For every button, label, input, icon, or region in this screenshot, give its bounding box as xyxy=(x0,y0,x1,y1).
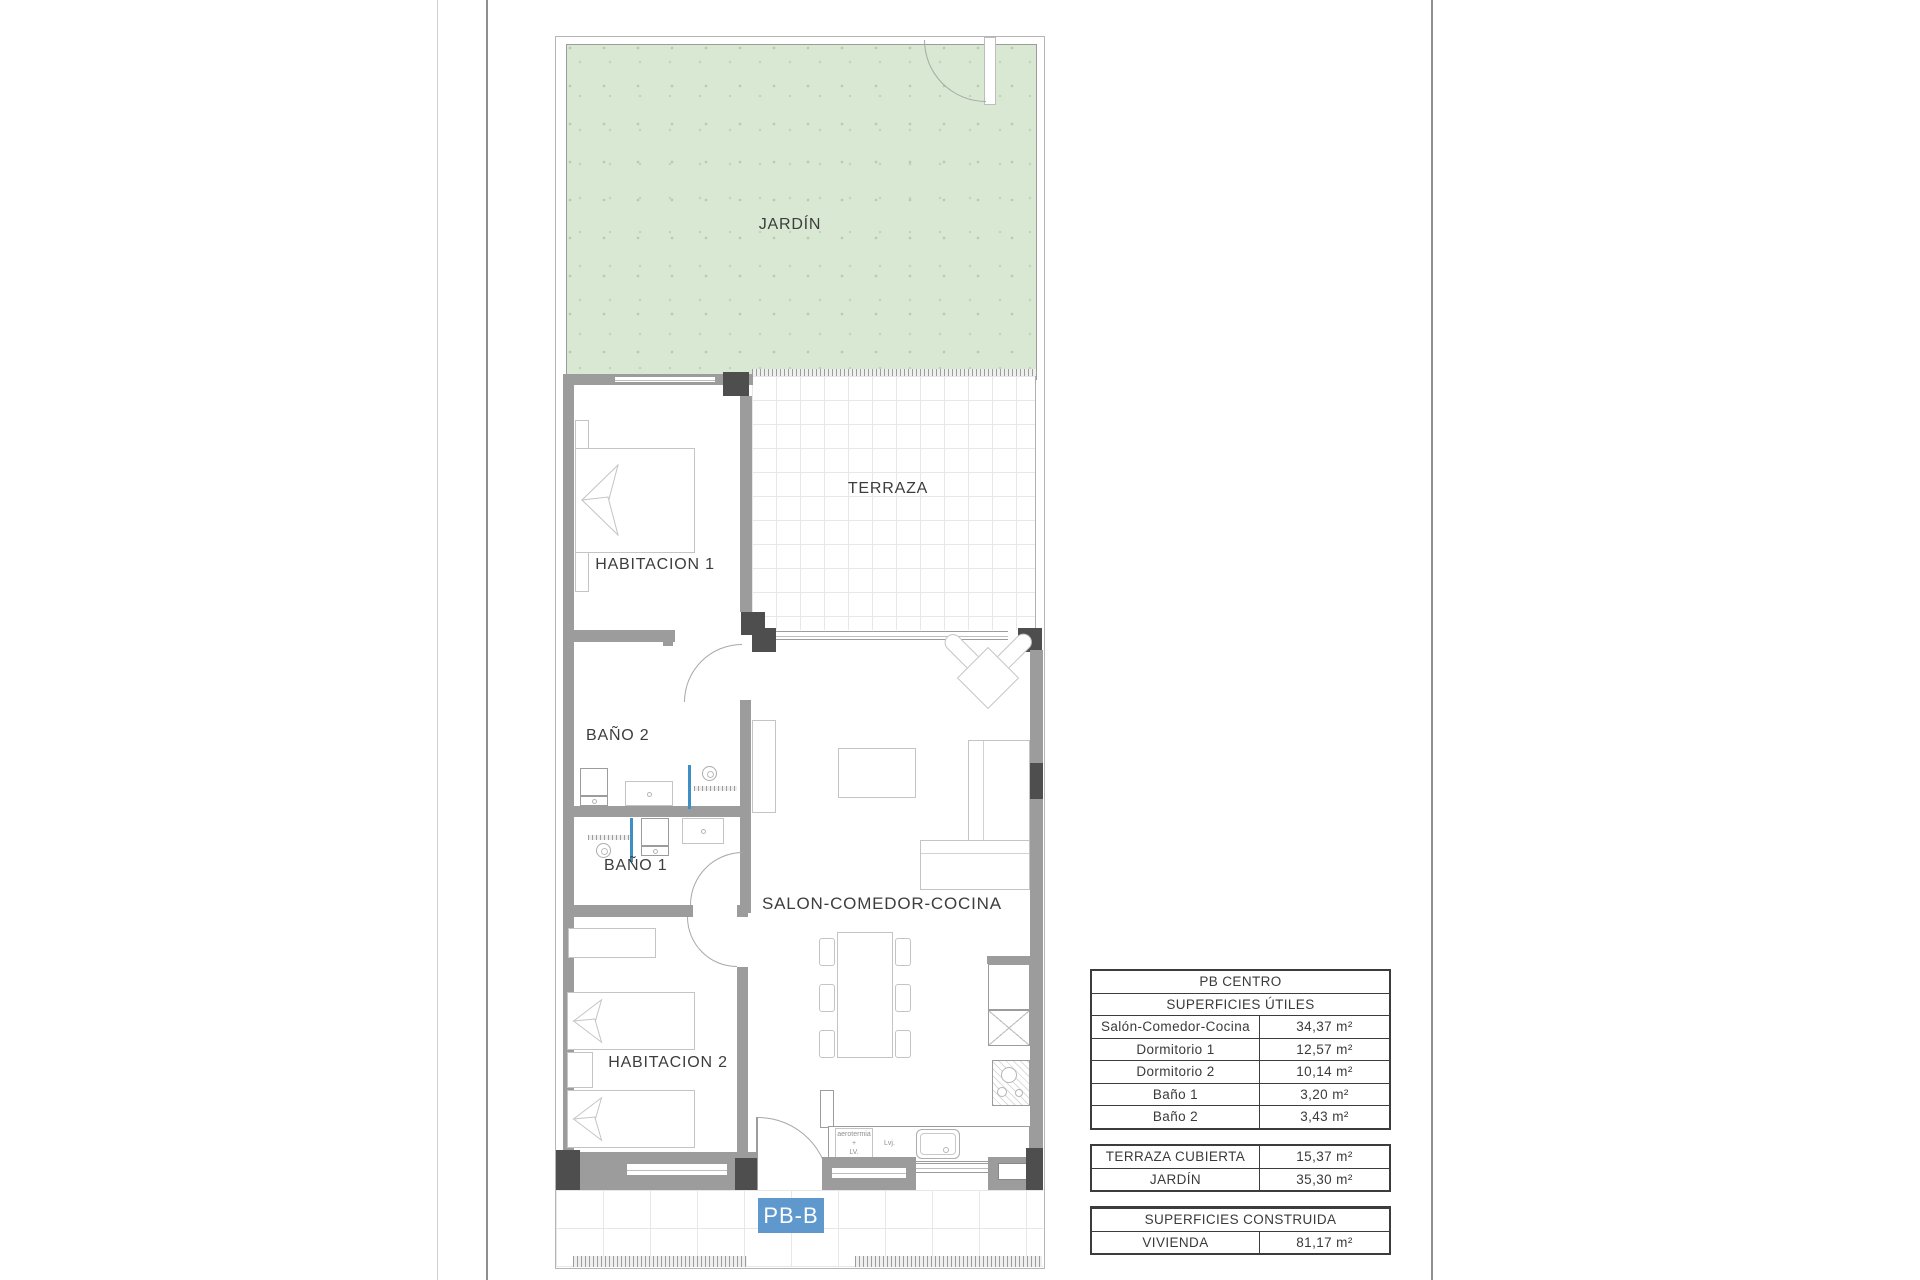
bed xyxy=(575,448,695,553)
sheet-guide-line xyxy=(486,0,488,1280)
oven-column xyxy=(988,1010,1030,1046)
bathroom1-label: BAÑO 1 xyxy=(604,857,668,875)
table-title: SUPERFICIES CONSTRUIDA xyxy=(1092,1209,1389,1231)
fridge xyxy=(988,964,1030,1010)
useful-areas-table: PB CENTRO SUPERFICIES ÚTILES Salón-Comed… xyxy=(1090,969,1391,1130)
nightstand xyxy=(567,1052,593,1088)
chair xyxy=(895,1030,911,1058)
exterior-areas-table: TERRAZA CUBIERTA15,37 m² JARDÍN35,30 m² xyxy=(1090,1144,1391,1192)
toilet xyxy=(641,818,669,846)
shower-wall-strip xyxy=(588,835,631,840)
toilet xyxy=(580,768,608,796)
sheet-guide-line xyxy=(1431,0,1433,1280)
chair xyxy=(895,938,911,966)
chair xyxy=(819,984,835,1012)
window xyxy=(916,1163,990,1173)
table-row: VIVIENDA81,17 m² xyxy=(1092,1231,1389,1254)
unit-badge: PB-B xyxy=(758,1198,824,1233)
wall-pillar xyxy=(735,1158,757,1190)
sofa-chaise xyxy=(920,840,1030,890)
shower-screen xyxy=(688,765,691,809)
wall xyxy=(1030,650,1043,1155)
bedroom1-label: HABITACION 1 xyxy=(588,556,722,574)
terrace-label: TERRAZA xyxy=(778,480,998,498)
wall xyxy=(563,806,751,817)
bathroom2-label: BAÑO 2 xyxy=(586,727,650,745)
wall xyxy=(740,396,752,612)
kitchen-peninsula xyxy=(820,1090,834,1128)
table-row: Salón-Comedor-Cocina34,37 m² xyxy=(1092,1015,1389,1038)
wall-pillar xyxy=(1030,763,1043,799)
floorplan-sheet: JARDÍN TERRAZA HABITACION 1 BAÑO 2 xyxy=(0,0,1920,1280)
table-subtitle: SUPERFICIES ÚTILES xyxy=(1092,993,1389,1016)
chair xyxy=(895,984,911,1012)
coffee-table xyxy=(838,748,916,798)
chair xyxy=(819,1030,835,1058)
walkway-edge-wall xyxy=(855,1256,1042,1267)
shower-wall-strip xyxy=(694,786,737,791)
shower-screen xyxy=(630,818,633,862)
garden-low-wall xyxy=(752,369,1037,376)
chair xyxy=(819,938,835,966)
wardrobe xyxy=(568,928,656,958)
table-row: Dormitorio 210,14 m² xyxy=(1092,1060,1389,1083)
dishwasher-label: Lvj. xyxy=(884,1140,895,1147)
garden-label: JARDÍN xyxy=(700,216,880,234)
living-room-label: SALON-COMEDOR-COCINA xyxy=(762,894,996,914)
window xyxy=(627,1163,727,1176)
table-row: Baño 23,43 m² xyxy=(1092,1105,1389,1128)
table-row: Dormitorio 112,57 m² xyxy=(1092,1038,1389,1061)
table-row: Baño 13,20 m² xyxy=(1092,1083,1389,1106)
table-title: PB CENTRO xyxy=(1092,971,1389,993)
terrace-area xyxy=(752,376,1036,630)
stove xyxy=(992,1060,1030,1106)
kitchen-counter-edge xyxy=(987,956,1032,964)
tv-sideboard xyxy=(752,720,776,813)
sheet-guide-line xyxy=(437,0,438,1280)
wall xyxy=(563,905,693,917)
walkway-edge-wall xyxy=(573,1256,747,1267)
bed xyxy=(567,992,695,1050)
terrace-sliding-door xyxy=(776,631,1008,640)
wall-pillar xyxy=(556,1150,580,1190)
bedroom2-label: HABITACION 2 xyxy=(598,1054,738,1072)
dining-table xyxy=(837,932,893,1058)
shower-head xyxy=(702,766,717,781)
table-row: TERRAZA CUBIERTA15,37 m² xyxy=(1092,1146,1389,1168)
built-areas-table: SUPERFICIES CONSTRUIDA VIVIENDA81,17 m² xyxy=(1090,1206,1391,1255)
window xyxy=(615,376,715,383)
wall xyxy=(737,967,748,1155)
wall-pillar xyxy=(723,372,749,396)
wall-pillar xyxy=(752,628,776,652)
bed xyxy=(567,1090,695,1148)
kitchen-sink xyxy=(916,1129,960,1159)
wall-pillar xyxy=(1026,1148,1043,1190)
toilet-base xyxy=(580,796,608,806)
table-row: JARDÍN35,30 m² xyxy=(1092,1168,1389,1191)
vanity xyxy=(682,818,724,844)
wall xyxy=(663,630,673,646)
wall xyxy=(737,905,748,917)
wall xyxy=(563,630,675,642)
toilet-base xyxy=(641,846,669,856)
shower-head xyxy=(596,843,611,858)
window xyxy=(832,1167,906,1179)
vanity xyxy=(625,781,673,806)
